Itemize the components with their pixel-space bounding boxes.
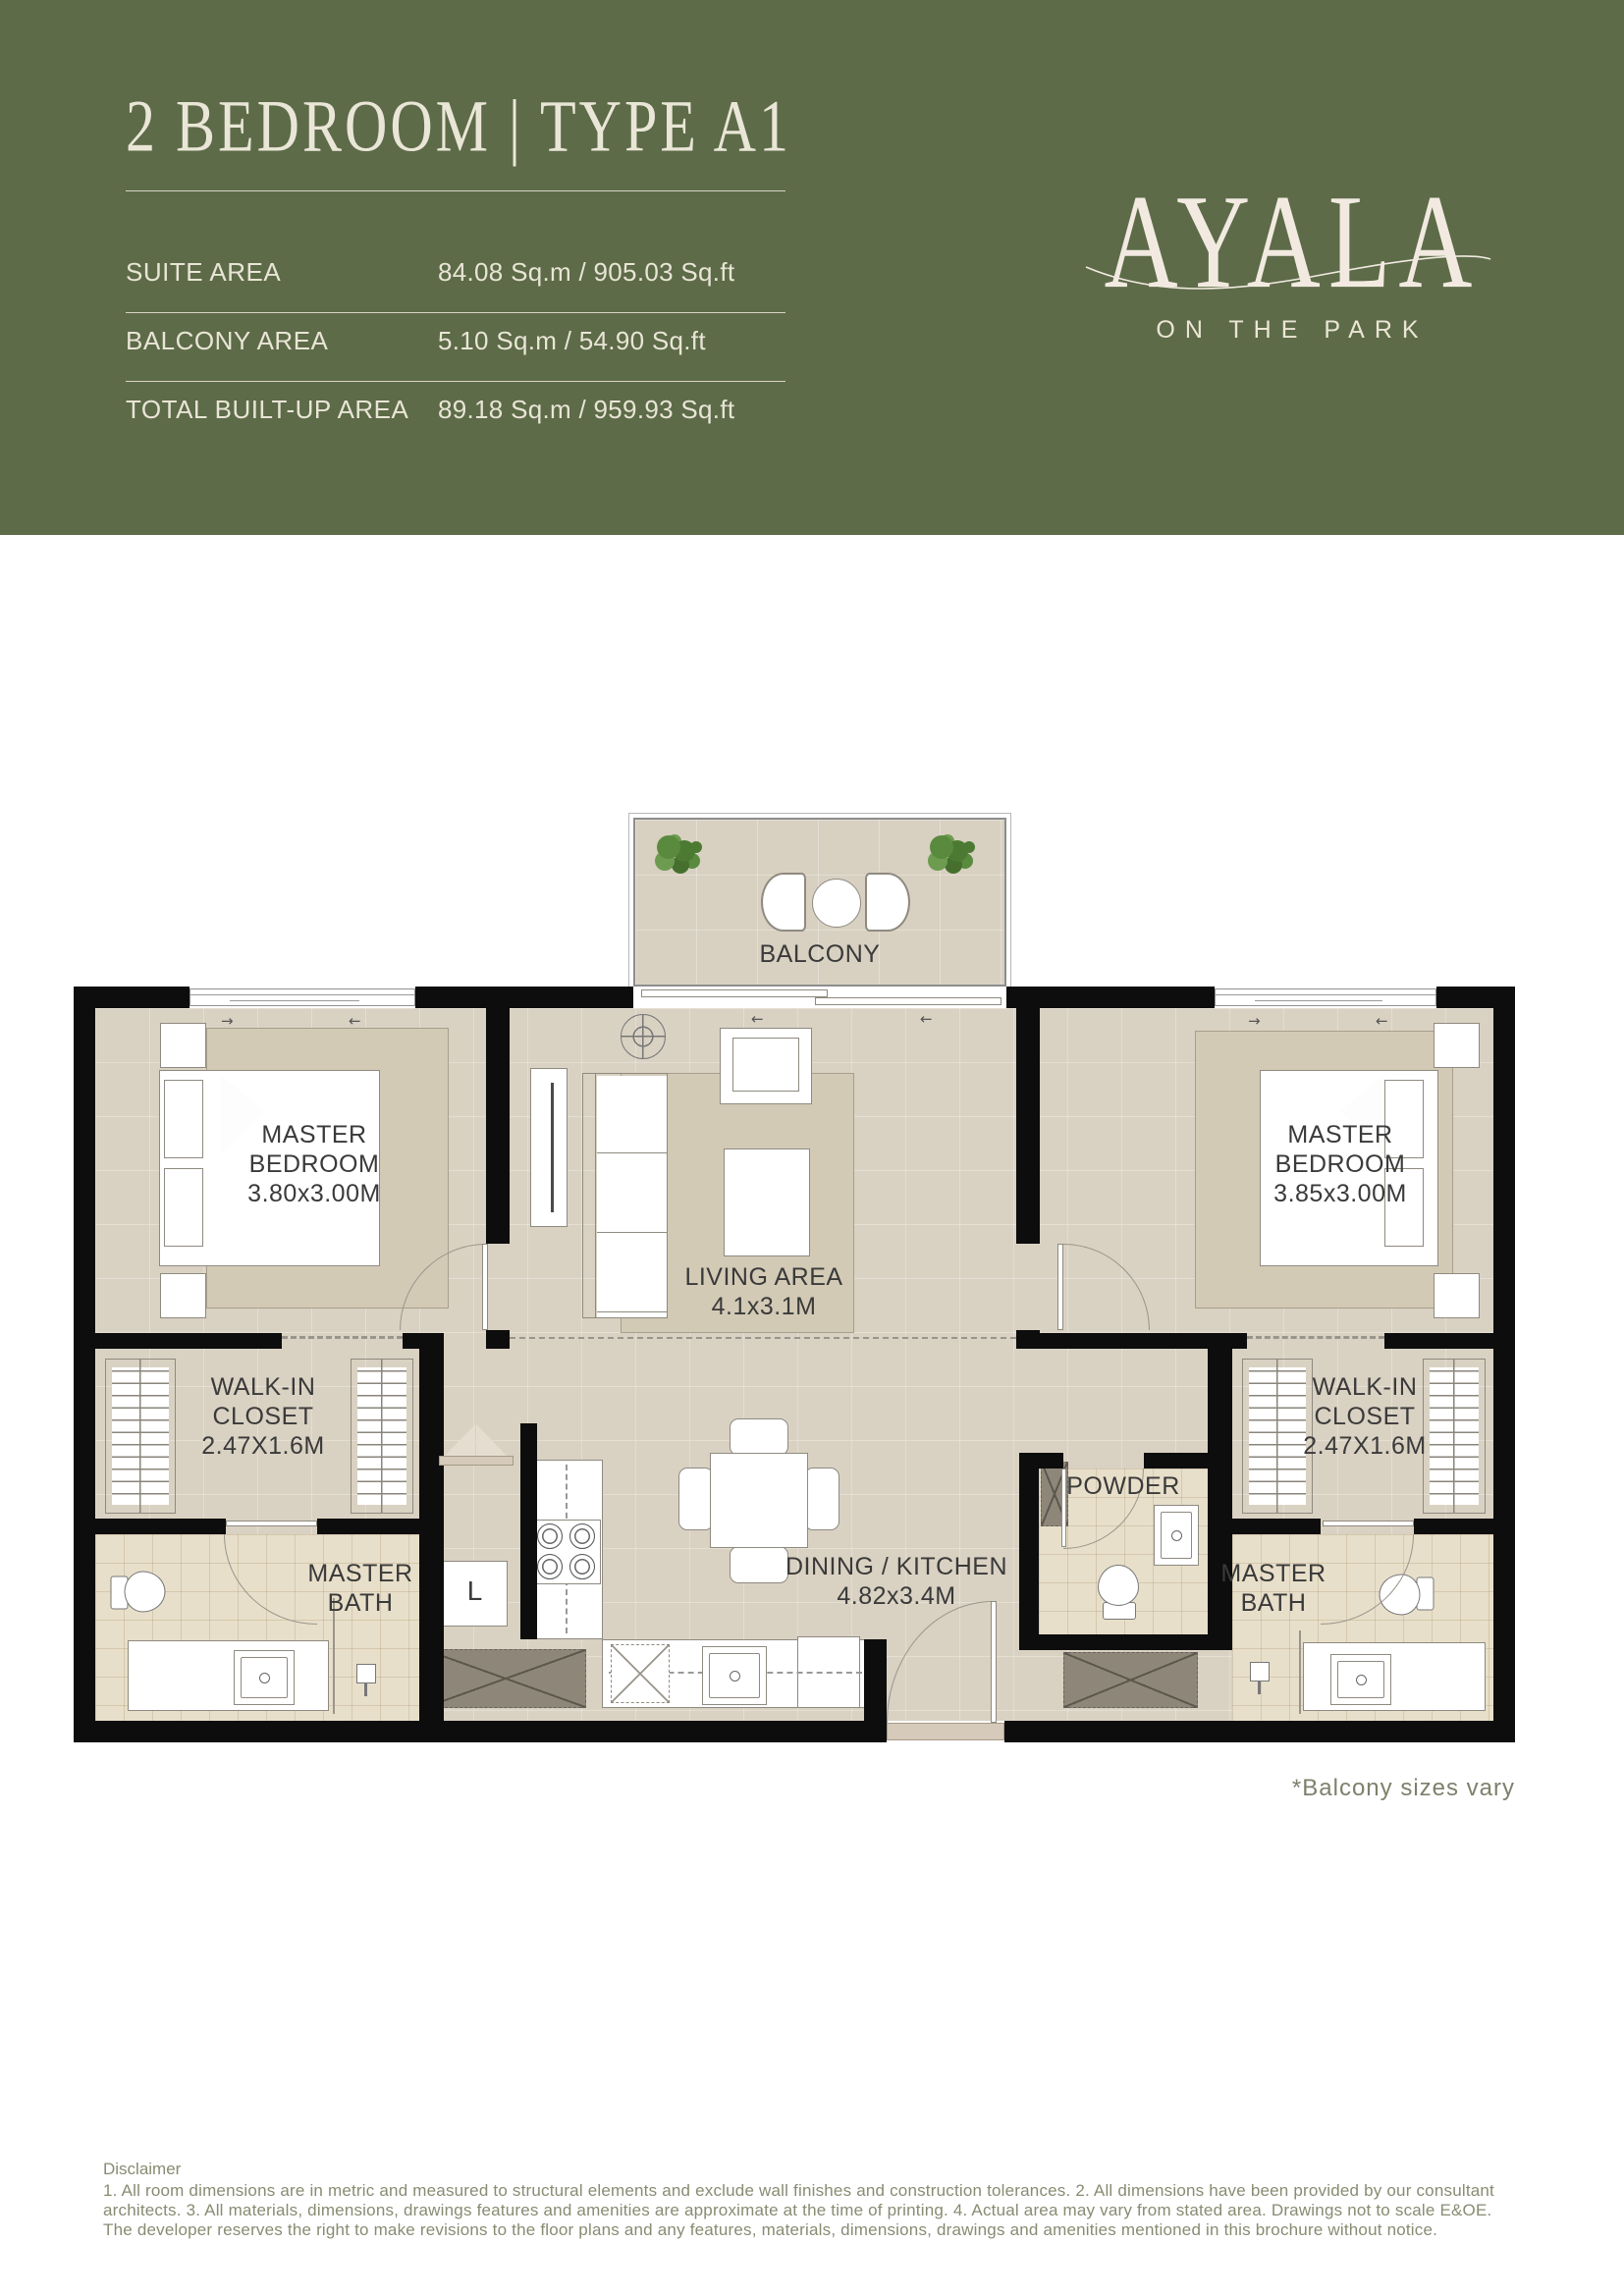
title-divider — [126, 190, 785, 191]
laundry-label: L — [443, 1575, 507, 1607]
shower-head-icon — [1250, 1662, 1270, 1682]
door-leaf — [1057, 1244, 1063, 1330]
armchair — [720, 1028, 812, 1104]
powder-toilet — [1100, 1566, 1139, 1620]
slide-arrow-icon: ← — [751, 1010, 764, 1028]
wall — [317, 1519, 419, 1534]
room-name: LIVING AREA — [646, 1262, 882, 1292]
brochure-page: { "header": { "title": "2 BEDROOM | TYPE… — [0, 0, 1624, 2296]
balcony-chair — [865, 873, 910, 932]
balcony-note: *Balcony sizes vary — [1178, 1775, 1515, 1802]
spec-divider — [126, 312, 785, 313]
wall — [1232, 1519, 1321, 1534]
room-name: WALK-IN CLOSET — [189, 1372, 337, 1431]
brand-tagline: ON THE PARK — [1090, 316, 1494, 345]
room-label-bath-right: MASTER BATH — [1210, 1559, 1337, 1618]
tv-unit — [530, 1068, 568, 1227]
wall — [1006, 987, 1215, 1008]
plant-icon — [930, 835, 953, 859]
wall — [1019, 1634, 1232, 1650]
kitchen-s ink — [702, 1646, 767, 1705]
wall — [415, 987, 633, 1008]
zone-boundary — [510, 1337, 1016, 1339]
wall — [419, 1349, 444, 1721]
pillow — [164, 1168, 203, 1247]
room-dims: 2.47X1.6M — [189, 1431, 337, 1461]
wall — [1040, 1333, 1247, 1349]
balcony-chair — [761, 873, 806, 932]
room-name: MASTER BEDROOM — [231, 1120, 398, 1179]
room-dims: 2.47X1.6M — [1291, 1431, 1438, 1461]
wall — [74, 1721, 887, 1742]
sliding-panel — [815, 997, 1001, 1005]
room-dims: 3.80x3.00M — [231, 1179, 398, 1208]
floor-plan: L — [74, 818, 1515, 1742]
dining-table — [710, 1453, 808, 1548]
wardrobe — [105, 1359, 176, 1514]
bath-sink — [1330, 1654, 1391, 1705]
wall — [1004, 1721, 1515, 1742]
disclaimer-body: 1. All room dimensions are in metric and… — [103, 2181, 1520, 2240]
bath-sink — [234, 1650, 295, 1705]
tv-icon — [551, 1083, 554, 1212]
door-leaf — [482, 1244, 488, 1330]
wall — [1414, 1519, 1493, 1534]
room-name: WALK-IN CLOSET — [1291, 1372, 1438, 1431]
page-title: 2 BEDROOM | TYPE A1 — [126, 84, 791, 169]
disclaimer-title: Disclaimer — [103, 2160, 181, 2179]
service-box — [425, 1649, 586, 1708]
spec-divider — [126, 381, 785, 382]
dining-chair — [730, 1418, 788, 1456]
shower-screen — [1299, 1630, 1301, 1714]
wall — [1493, 987, 1515, 1742]
wall — [864, 1639, 887, 1721]
wall — [1016, 1330, 1040, 1349]
dining-chair — [678, 1468, 714, 1530]
wall — [1384, 1333, 1493, 1349]
room-label-living: LIVING AREA 4.1x3.1M — [646, 1262, 882, 1321]
shower-head-icon — [356, 1664, 376, 1683]
coffee-table — [724, 1148, 810, 1256]
pillow — [164, 1080, 203, 1158]
appliance-space — [611, 1644, 670, 1703]
plant-icon — [657, 835, 680, 859]
room-label-closet-left: WALK-IN CLOSET 2.47X1.6M — [189, 1372, 337, 1461]
brand-swoosh-icon — [1082, 247, 1494, 306]
room-dims: 3.85x3.00M — [1257, 1179, 1424, 1208]
nightstand — [1434, 1273, 1480, 1318]
window — [1215, 988, 1436, 1006]
wall — [520, 1423, 537, 1639]
nightstand — [1434, 1023, 1480, 1068]
wall — [74, 987, 95, 1742]
open-passage — [1247, 1336, 1384, 1339]
wall — [1144, 1453, 1208, 1468]
wall — [95, 1519, 226, 1534]
entry-threshold — [887, 1723, 1004, 1740]
room-dims: 4.82x3.4M — [739, 1581, 1054, 1611]
wall — [403, 1333, 444, 1349]
door-threshold — [439, 1456, 514, 1466]
wall — [486, 1330, 510, 1349]
ceiling-light-icon — [621, 1014, 666, 1059]
stove — [532, 1520, 601, 1584]
room-label-dining-kitchen: DINING / KITCHEN 4.82x3.4M — [739, 1552, 1054, 1611]
service-box — [1063, 1652, 1198, 1708]
spec-value-suite-area: 84.08 Sq.m / 905.03 Sq.ft — [438, 257, 734, 288]
sliding-panel — [641, 989, 828, 997]
spec-label-total-area: TOTAL BUILT-UP AREA — [126, 395, 408, 425]
wardrobe — [351, 1359, 413, 1514]
spec-label-suite-area: SUITE AREA — [126, 257, 281, 288]
spec-value-balcony-area: 5.10 Sq.m / 54.90 Sq.ft — [438, 326, 706, 356]
door-leaf — [226, 1521, 317, 1526]
wall — [1039, 1453, 1063, 1468]
wall — [1016, 1008, 1040, 1244]
toilet — [111, 1574, 165, 1613]
entry-door-leaf — [991, 1601, 997, 1723]
burner-icon — [569, 1554, 595, 1579]
burner-icon — [537, 1523, 563, 1549]
window — [189, 988, 415, 1006]
spec-label-balcony-area: BALCONY AREA — [126, 326, 328, 356]
door-leaf — [1323, 1521, 1414, 1526]
nightstand — [160, 1273, 206, 1318]
washer-box: L — [442, 1561, 508, 1627]
slide-arrow-icon: ← — [920, 1010, 933, 1028]
room-label-powder: POWDER — [1035, 1471, 1212, 1501]
room-label-bedroom-right: MASTER BEDROOM 3.85x3.00M — [1257, 1120, 1424, 1208]
room-name: DINING / KITCHEN — [739, 1552, 1054, 1581]
burner-icon — [569, 1523, 595, 1549]
room-label-bedroom-left: MASTER BEDROOM 3.80x3.00M — [231, 1120, 398, 1208]
room-label-bath-left: MASTER BATH — [297, 1559, 424, 1618]
wall — [486, 1008, 510, 1244]
room-dims: 4.1x3.1M — [646, 1292, 882, 1321]
spec-value-total-area: 89.18 Sq.m / 959.93 Sq.ft — [438, 395, 734, 425]
burner-icon — [537, 1554, 563, 1579]
room-label-balcony: BALCONY — [712, 939, 928, 969]
balcony-table — [812, 879, 861, 928]
powder-sink — [1154, 1505, 1199, 1566]
open-passage — [282, 1336, 403, 1339]
room-label-closet-right: WALK-IN CLOSET 2.47X1.6M — [1291, 1372, 1438, 1461]
slide-arrow-icon: → — [1248, 1012, 1261, 1030]
room-name: MASTER BEDROOM — [1257, 1120, 1424, 1179]
slide-arrow-icon: ← — [349, 1012, 361, 1030]
header-band: 2 BEDROOM | TYPE A1 SUITE AREA 84.08 Sq.… — [0, 0, 1624, 535]
wall — [95, 1333, 282, 1349]
nightstand — [160, 1023, 206, 1068]
vanity-counter — [128, 1640, 329, 1711]
slide-arrow-icon: → — [221, 1012, 234, 1030]
dining-chair — [804, 1468, 839, 1530]
slide-arrow-icon: ← — [1376, 1012, 1388, 1030]
